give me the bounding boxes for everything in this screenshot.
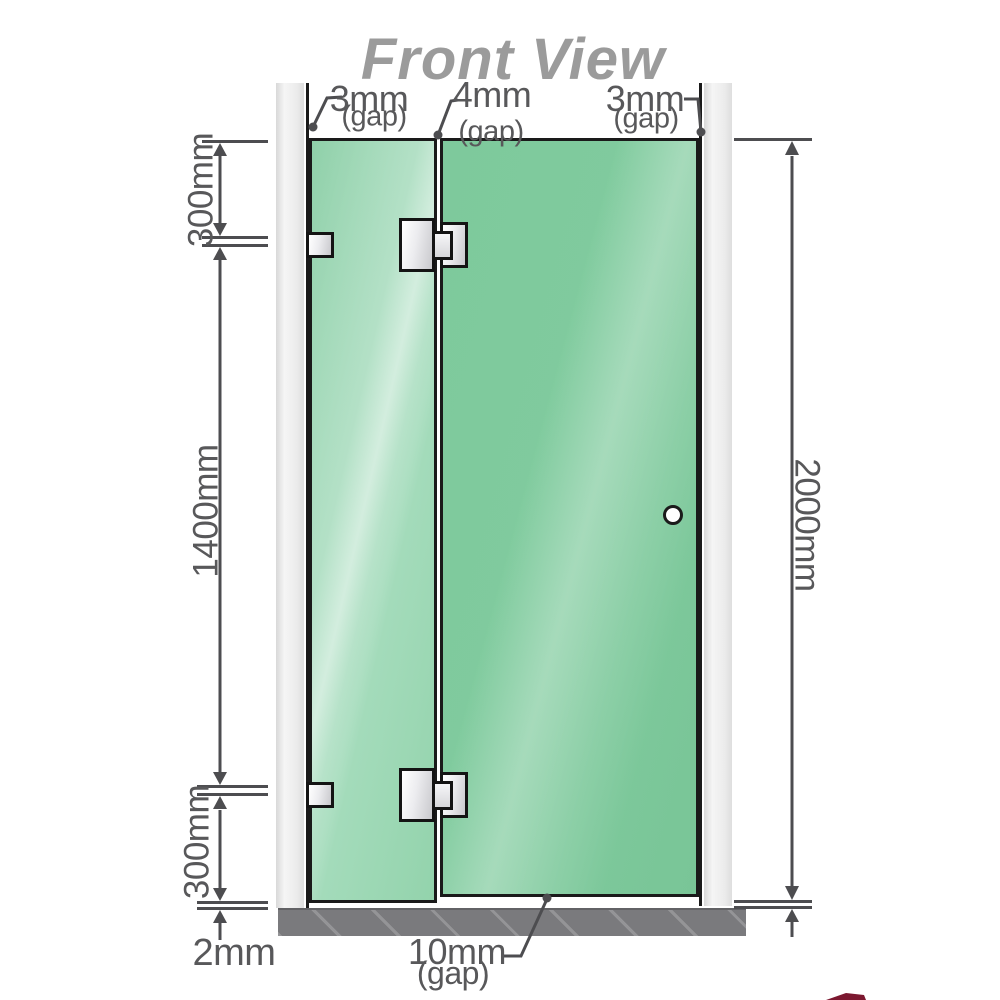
bottom-hinge-pin bbox=[432, 781, 453, 810]
door-glass-panel bbox=[440, 138, 699, 897]
corner-watermark bbox=[826, 993, 866, 1000]
top-wall-bracket bbox=[306, 232, 334, 258]
gap-label-right-unit: (gap) bbox=[613, 105, 678, 134]
left-wall-channel bbox=[276, 83, 304, 908]
door-handle-knob bbox=[663, 505, 683, 525]
floor-base bbox=[278, 908, 746, 936]
top-hinge-pin bbox=[432, 231, 453, 260]
dim-label-left-middle: 1400mm bbox=[189, 444, 224, 577]
right-wall-channel bbox=[704, 83, 732, 906]
gap-label-middle-value: 4mm bbox=[453, 77, 532, 113]
right-wall-edge-line bbox=[699, 83, 702, 906]
bottom-wall-bracket bbox=[306, 782, 334, 808]
gap-label-left-unit: (gap) bbox=[341, 103, 406, 132]
dim-label-right-total: 2000mm bbox=[790, 458, 825, 591]
dim-label-floor-clearance: 2mm bbox=[193, 934, 276, 972]
bottom-hinge-left-plate bbox=[399, 768, 435, 822]
gap-label-middle-unit: (gap) bbox=[458, 118, 523, 147]
gap-label-bottom-unit: (gap) bbox=[417, 957, 489, 989]
dim-label-left-bottom: 300mm bbox=[180, 785, 215, 899]
dim-label-left-top: 300mm bbox=[184, 133, 219, 247]
front-view-diagram: Front View bbox=[0, 0, 1000, 1000]
top-hinge-left-plate bbox=[399, 218, 435, 272]
